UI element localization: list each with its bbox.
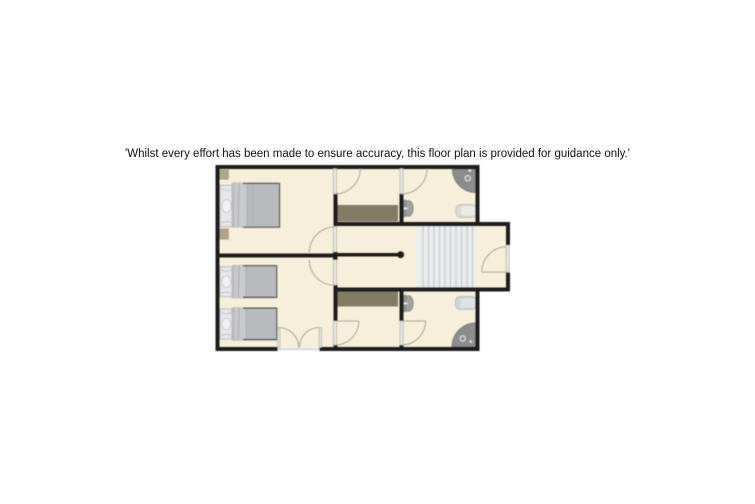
svg-text:'Whilst every effort has been: 'Whilst every effort has been made to en… — [125, 148, 630, 160]
